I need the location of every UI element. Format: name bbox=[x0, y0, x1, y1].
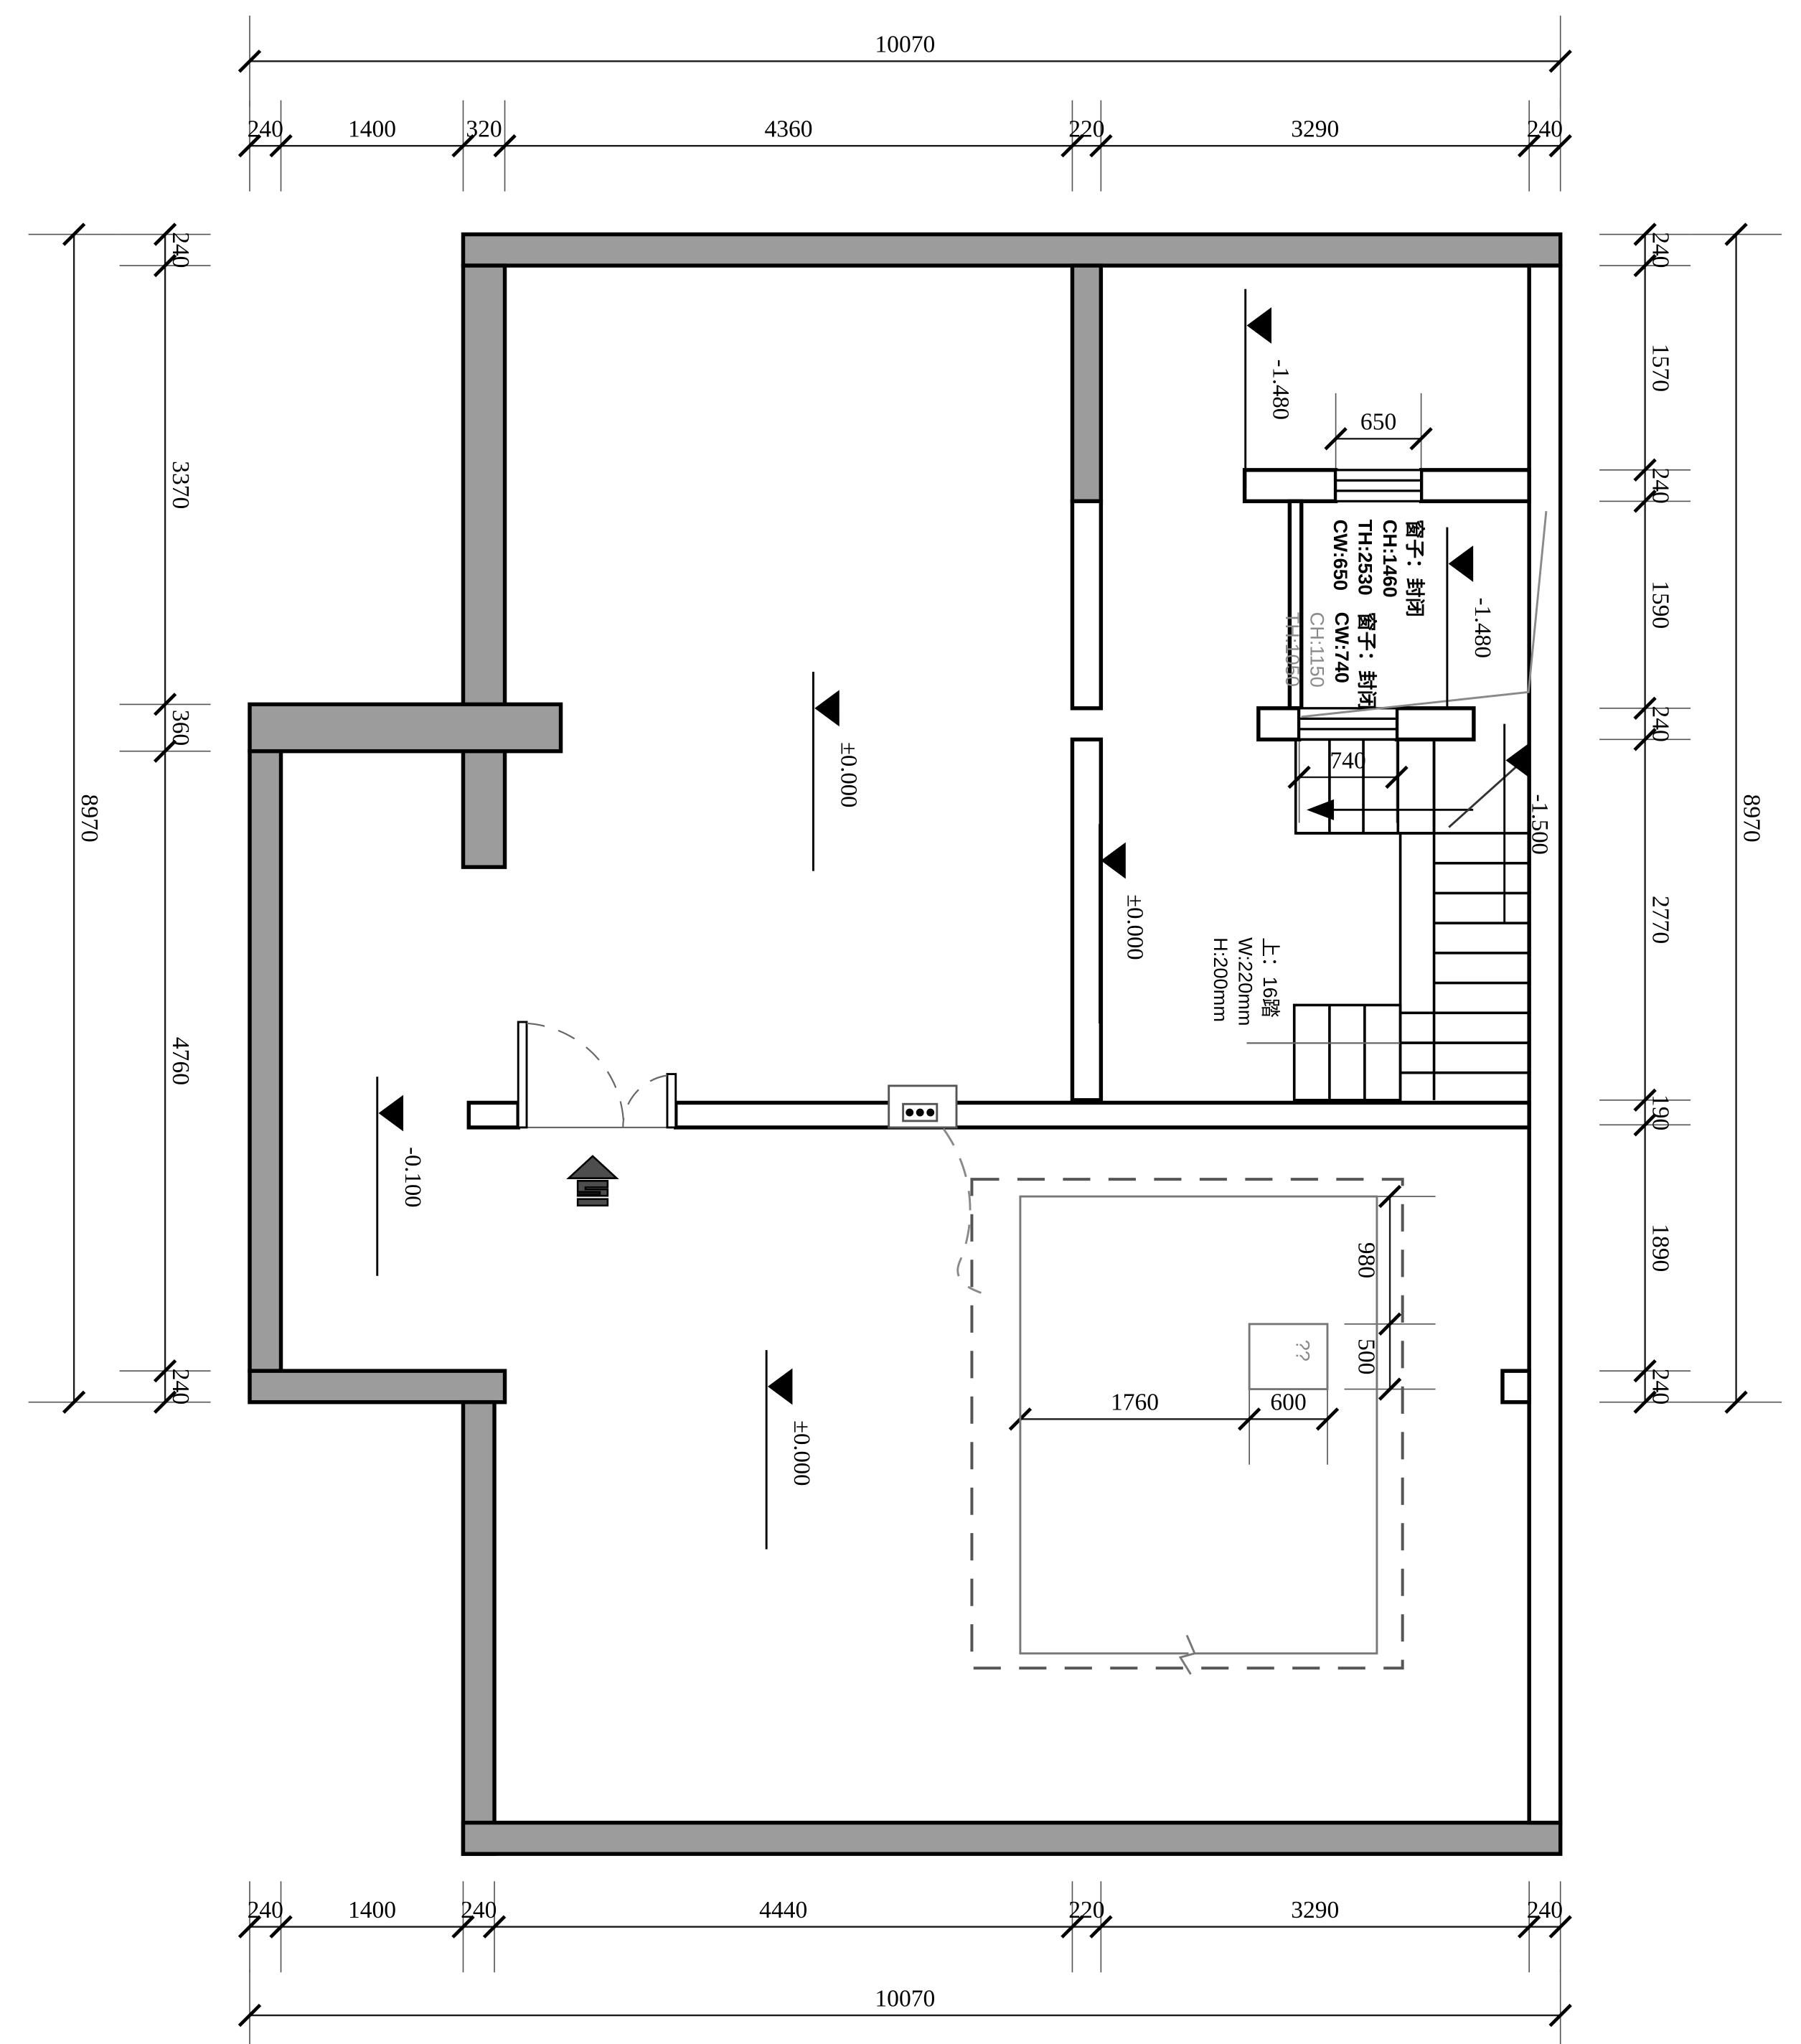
dashed-boundary bbox=[972, 1179, 1402, 1668]
door-leaf-small bbox=[667, 1074, 676, 1128]
elevation-value: -1.480 bbox=[1268, 360, 1294, 420]
dashed-zone: ?? bbox=[972, 1179, 1402, 1674]
dimension-value: 240 bbox=[167, 232, 194, 268]
elevation-triangle-icon bbox=[768, 1369, 792, 1405]
dim-island-vertical: 980500 bbox=[1345, 1186, 1436, 1400]
dimension-value: 240 bbox=[248, 1897, 283, 1923]
wall-right-notch bbox=[1503, 1371, 1529, 1402]
outlet-dot bbox=[906, 1109, 913, 1117]
elevation-value: ±0.000 bbox=[1122, 894, 1148, 960]
dimension-value: 240 bbox=[167, 1369, 194, 1405]
elevation-triangle-icon bbox=[1247, 307, 1271, 344]
wall-top bbox=[463, 235, 1560, 266]
window-650-symbol bbox=[1336, 470, 1421, 502]
dimension-value: 1590 bbox=[1647, 581, 1673, 629]
dimension-value: 1890 bbox=[1647, 1224, 1673, 1272]
stair-line: 上：16踏 bbox=[1259, 937, 1282, 1018]
dimension-value: 500 bbox=[1353, 1339, 1380, 1374]
window2-line: 窗子：封闭 bbox=[1355, 612, 1378, 710]
elevation-marker-1480-top: -1.480 bbox=[1246, 289, 1294, 489]
dim-chain-right: 2401570240159024027701901890240 bbox=[1599, 224, 1691, 1412]
dim-chain-bottom-overall: 10070 bbox=[239, 1970, 1571, 2044]
dimension-value: 8970 bbox=[1738, 794, 1764, 843]
dimension-value: 10070 bbox=[875, 32, 935, 58]
wall-window1-left bbox=[1245, 470, 1336, 502]
window2-line: CW:740 bbox=[1331, 612, 1353, 683]
island-box bbox=[1249, 1324, 1327, 1389]
elevation-triangle-icon bbox=[1449, 545, 1473, 582]
elevation-triangle-icon bbox=[1101, 843, 1125, 879]
wall-mid-left-jog bbox=[250, 704, 561, 751]
dimension-value: 240 bbox=[1647, 1369, 1673, 1405]
dimension-value: 240 bbox=[248, 116, 283, 142]
wall-left-outer bbox=[250, 751, 281, 1371]
elevation-value: -1.500 bbox=[1527, 794, 1553, 855]
wall-hall-right bbox=[676, 1102, 1529, 1127]
window-frame bbox=[1299, 708, 1397, 740]
elevation-triangle-icon bbox=[814, 690, 839, 726]
dimension-value: 240 bbox=[461, 1897, 497, 1923]
dimension-value: 10070 bbox=[875, 1985, 935, 2012]
wall-lower-left-vertical bbox=[463, 1402, 494, 1854]
dimension-value: 8970 bbox=[76, 794, 103, 843]
dimension-value: 600 bbox=[1270, 1389, 1306, 1416]
wall-left-bottom-cap bbox=[250, 1371, 505, 1402]
dim-chain-top: 240140032043602203290240 bbox=[239, 100, 1571, 192]
dimension-value: 240 bbox=[1527, 1897, 1563, 1923]
dimension-value: 980 bbox=[1353, 1242, 1380, 1278]
door-leaf-large bbox=[518, 1022, 527, 1128]
window2-line: TH:1050 bbox=[1282, 612, 1304, 687]
dim-chain-left-overall: 8970 bbox=[29, 224, 120, 1412]
dimension-value: 220 bbox=[1068, 116, 1104, 142]
wall-window2-left bbox=[1259, 708, 1299, 740]
dimension-value: 240 bbox=[1527, 116, 1563, 142]
elevation-value: -1.480 bbox=[1470, 598, 1495, 658]
stair-direction-arrow-icon bbox=[1307, 800, 1334, 820]
elevation-value: -0.100 bbox=[400, 1147, 425, 1207]
window1-line: CH:1460 bbox=[1379, 520, 1401, 598]
island-label: ?? bbox=[1292, 1340, 1314, 1361]
dimension-value: 4360 bbox=[764, 116, 812, 142]
dimension-value: 190 bbox=[1647, 1094, 1673, 1130]
dimension-value: 4760 bbox=[167, 1037, 194, 1085]
wall-window1-right bbox=[1421, 470, 1530, 502]
wall-mid-vertical-upper bbox=[1072, 501, 1101, 708]
dimension-value: 220 bbox=[1068, 1897, 1104, 1923]
entry-arrow-zigzag bbox=[578, 1181, 608, 1205]
window-740-symbol bbox=[1299, 708, 1397, 740]
stair-annotation: 上：16踏 W:220mm H:200mm bbox=[1210, 937, 1282, 1026]
wall-bottom bbox=[463, 1823, 1560, 1855]
window1-line: 窗子：封闭 bbox=[1403, 520, 1426, 617]
entry-double-door bbox=[518, 1022, 675, 1128]
wall-hall-left-stub bbox=[469, 1102, 518, 1127]
stair-line: W:220mm bbox=[1235, 937, 1257, 1026]
elevation-marker-minus100: -0.100 bbox=[377, 1077, 425, 1276]
elevation-marker-zero-lower: ±0.000 bbox=[766, 1350, 814, 1550]
outlet-dot bbox=[926, 1109, 934, 1117]
dimension-value: 1400 bbox=[348, 1897, 396, 1923]
entry-arrow-head bbox=[568, 1156, 616, 1178]
dimension-value: 3370 bbox=[167, 461, 194, 509]
window1-annotation: 窗子：封闭 CH:1460 TH:2530 CW:650 bbox=[1330, 520, 1426, 617]
window1-line: CW:650 bbox=[1330, 520, 1352, 591]
dimension-value: 3290 bbox=[1291, 1897, 1339, 1923]
wall-window2-right bbox=[1397, 708, 1474, 740]
dimension-value: 240 bbox=[1647, 467, 1673, 503]
dimension-value: 320 bbox=[466, 116, 502, 142]
door-swing-arc-large bbox=[527, 1023, 624, 1128]
elevation-marker-zero-main: ±0.000 bbox=[813, 672, 861, 871]
elevation-value: ±0.000 bbox=[789, 1420, 814, 1486]
door-swing-arc-small bbox=[623, 1075, 667, 1128]
elevation-triangle-icon bbox=[379, 1095, 403, 1132]
wall-mid-stub bbox=[1072, 266, 1101, 501]
stair-lower-flight bbox=[1294, 1005, 1401, 1100]
window1-line: TH:2530 bbox=[1355, 520, 1377, 596]
outlet-dot bbox=[916, 1109, 924, 1117]
dimension-value: 1570 bbox=[1647, 344, 1673, 392]
dimension-value: 1760 bbox=[1111, 1389, 1159, 1416]
elevation-marker-zero-hall: ±0.000 bbox=[1100, 824, 1148, 1023]
dimension-value: 650 bbox=[1360, 409, 1396, 436]
wall-mid-vertical-lower bbox=[1072, 739, 1101, 1100]
window-frame bbox=[1336, 470, 1421, 502]
dimension-value: 240 bbox=[1647, 705, 1673, 741]
elevation-marker-1480-room: -1.480 bbox=[1447, 528, 1495, 707]
dim-chain-top-overall: 10070 bbox=[239, 16, 1571, 107]
dim-chain-bottom: 240140024044402203290240 bbox=[239, 1881, 1571, 1972]
outlet-leader-curve bbox=[944, 1129, 982, 1293]
stair-line: H:200mm bbox=[1210, 937, 1232, 1022]
elevation-value: ±0.000 bbox=[835, 742, 861, 807]
dimension-value: 360 bbox=[167, 710, 194, 746]
dimension-value: 240 bbox=[1647, 232, 1673, 268]
dimension-value: 3290 bbox=[1291, 116, 1339, 142]
dimension-value: 740 bbox=[1330, 747, 1365, 774]
dim-chain-left: 24033703604760240 bbox=[120, 224, 211, 1412]
floor-plan-canvas: 10070 240140032043602203290240 240140024… bbox=[0, 0, 1801, 2044]
floor-plan-page: 10070 240140032043602203290240 240140024… bbox=[0, 0, 1801, 2044]
dimension-value: 1400 bbox=[348, 116, 396, 142]
dimension-value: 2770 bbox=[1647, 896, 1673, 944]
wall-outlet-symbol bbox=[889, 1086, 956, 1128]
dimension-value: 4440 bbox=[759, 1897, 807, 1923]
dim-chain-right-overall: 8970 bbox=[1691, 224, 1782, 1412]
wall-upper-left-vertical bbox=[463, 266, 504, 867]
window2-line: CH:1150 bbox=[1306, 612, 1328, 688]
wall-right-outer bbox=[1529, 266, 1561, 1823]
entry-arrow-icon bbox=[568, 1156, 616, 1206]
